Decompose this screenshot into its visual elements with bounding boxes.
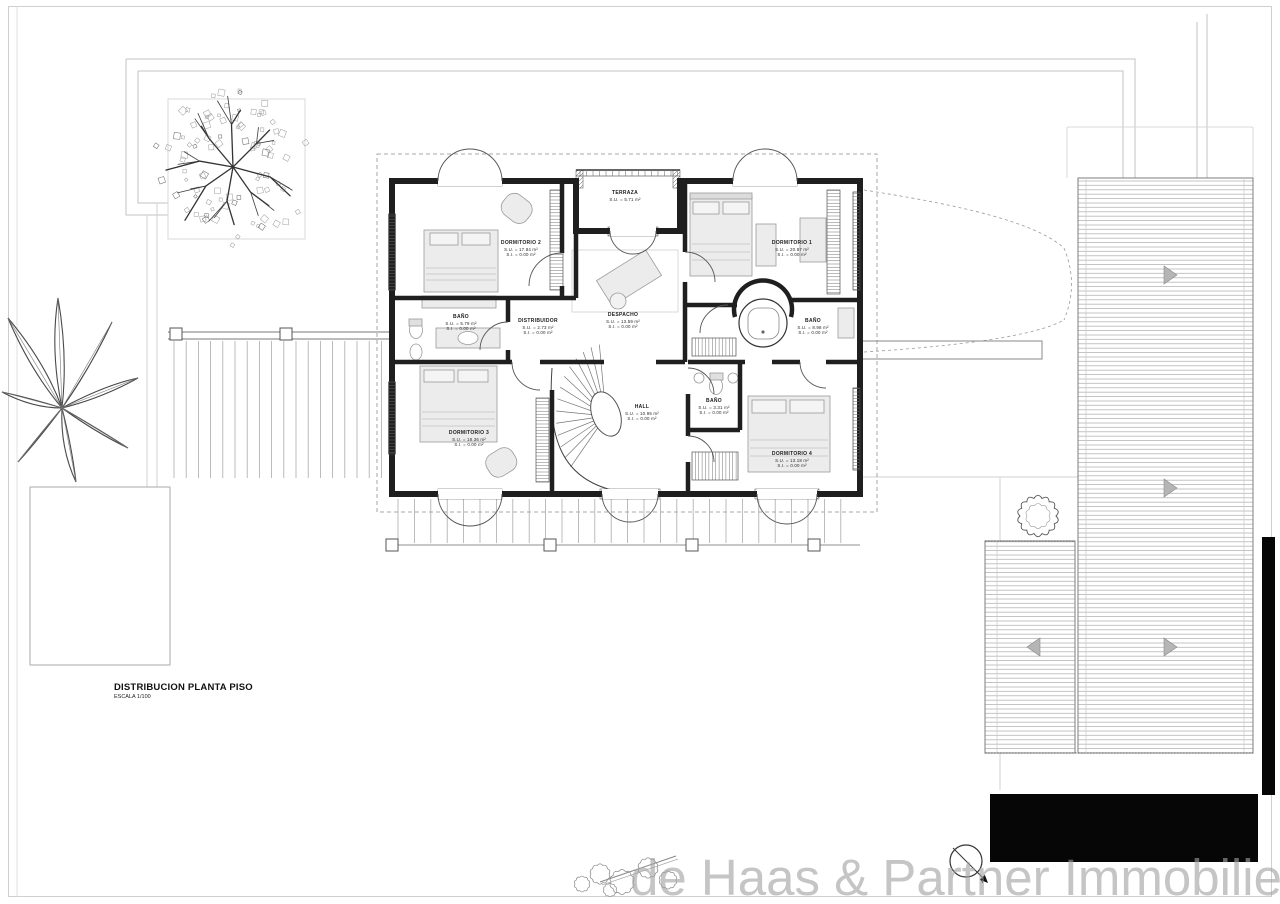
sink-icon	[694, 373, 704, 383]
bidet-icon	[410, 344, 422, 360]
dresser-icon	[800, 218, 826, 262]
garage-outline	[30, 487, 170, 665]
bed-icon	[690, 193, 752, 276]
chest-icon	[756, 224, 776, 266]
pergola	[168, 328, 392, 478]
foliage-sketch-icon	[574, 856, 678, 897]
radiator-icon	[692, 338, 736, 356]
deck-upper	[1078, 178, 1253, 753]
bush-icon	[1018, 495, 1058, 536]
wardrobe-icon	[827, 190, 840, 294]
floorplan-page: TERRAZA S.U. = 5.71 m² DORMITORIO 2 S.U.…	[0, 0, 1280, 904]
window-icon	[853, 388, 860, 470]
plan-scale: ESCALA 1/100	[114, 694, 253, 700]
window-icon	[389, 214, 396, 290]
leader-dashes	[864, 190, 1072, 352]
floorplan-drawing	[0, 0, 1280, 904]
porch	[386, 499, 860, 551]
building-plan	[389, 149, 864, 526]
window-icon	[853, 192, 860, 290]
window-icon	[389, 382, 396, 454]
plant-icon	[2, 298, 138, 482]
title-block: DISTRIBUCION PLANTA PISO ESCALA 1/100	[114, 682, 253, 700]
bed-icon	[420, 366, 497, 442]
plan-title: DISTRIBUCION PLANTA PISO	[114, 682, 253, 693]
bathtub-icon	[739, 299, 787, 347]
tree-icon	[153, 89, 309, 248]
wardrobe-icon	[692, 452, 738, 480]
wardrobe-icon	[536, 398, 549, 482]
bed-icon	[748, 396, 830, 472]
sink-icon	[728, 373, 738, 383]
vanity-icon	[838, 308, 854, 338]
